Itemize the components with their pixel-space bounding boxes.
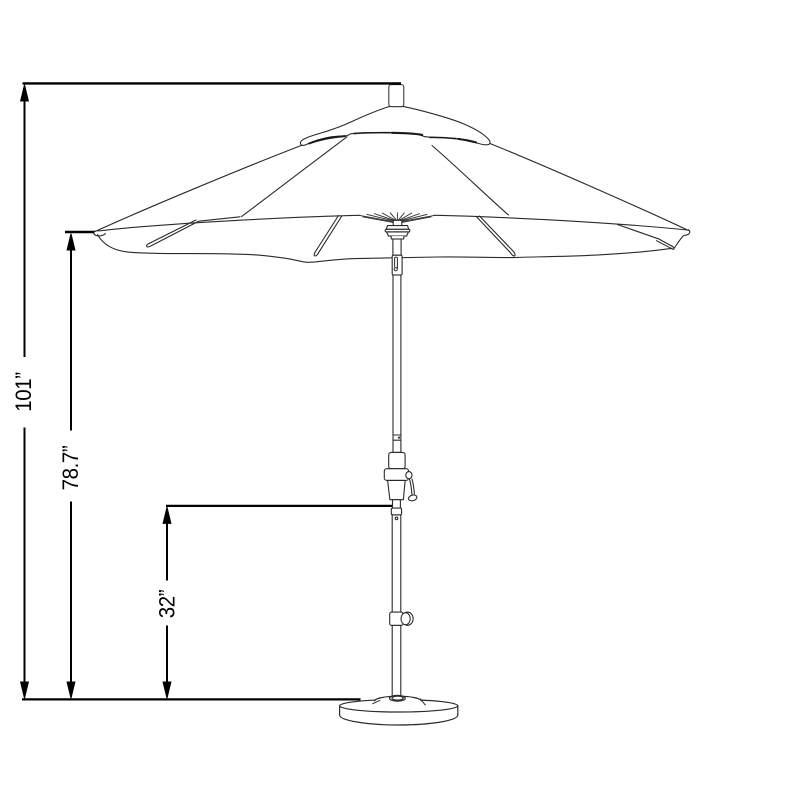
svg-text:32”: 32” — [155, 590, 180, 619]
svg-text:78.7”: 78.7” — [58, 445, 83, 490]
svg-text:101”: 101” — [11, 372, 36, 412]
